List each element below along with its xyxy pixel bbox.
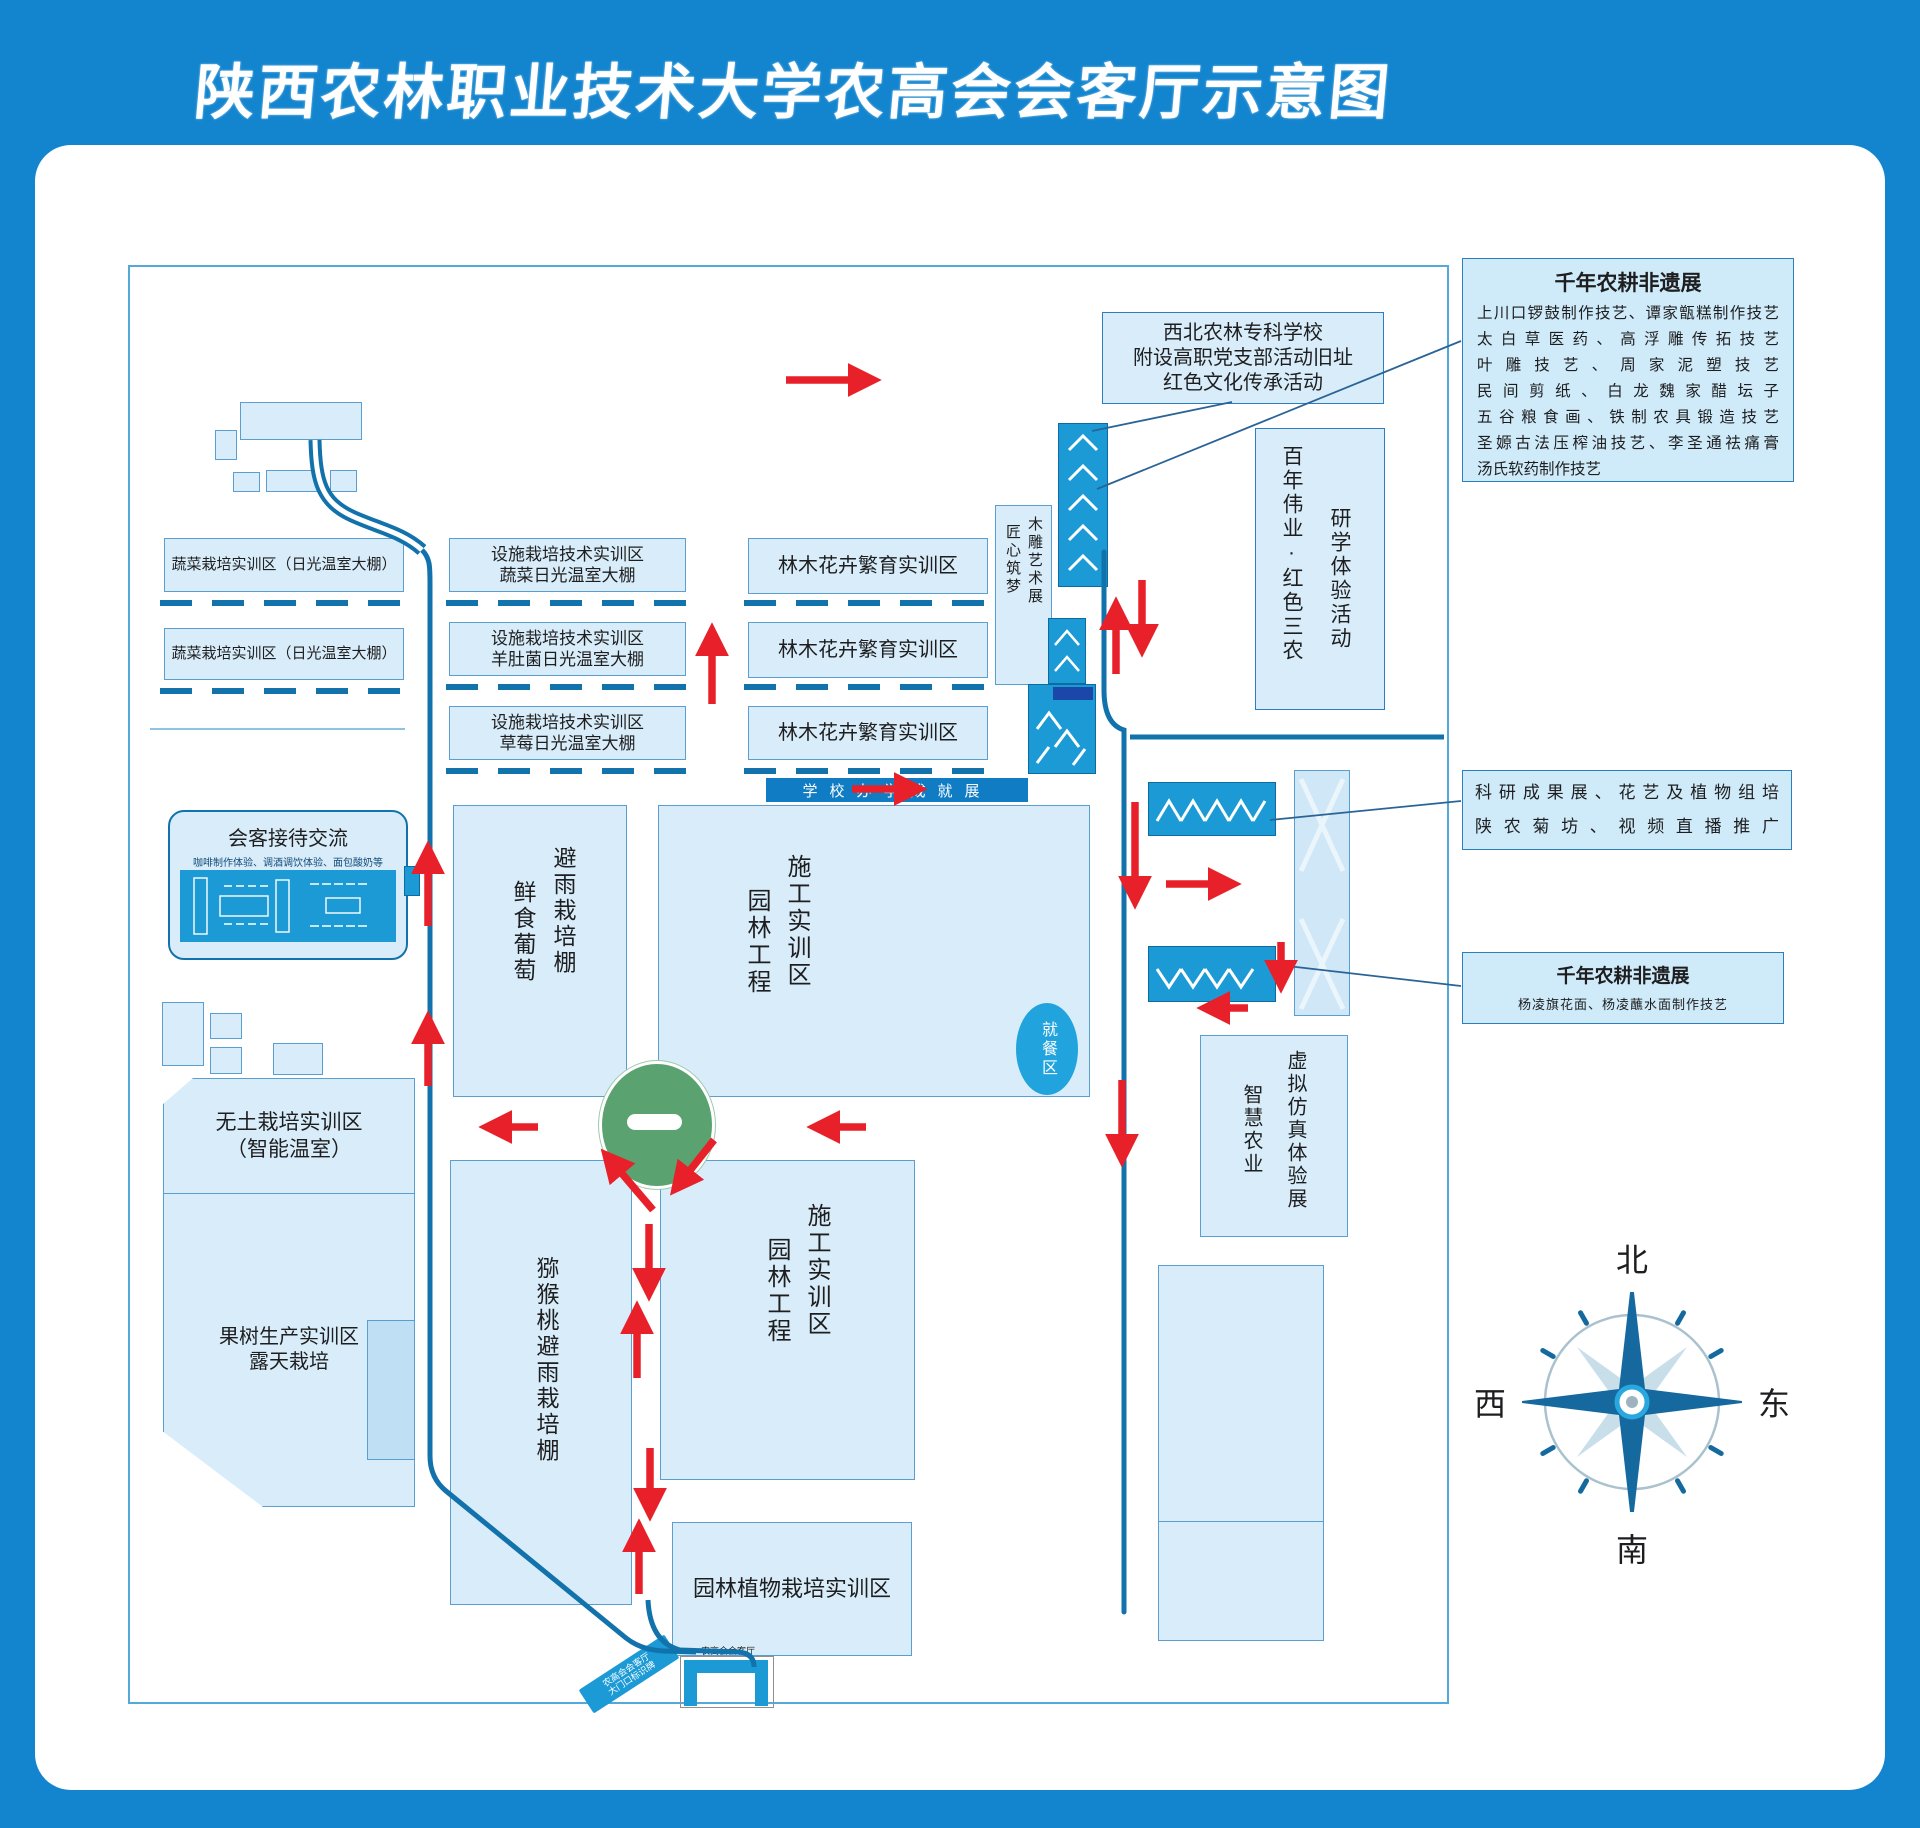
zone-label: 避雨栽培棚	[546, 846, 580, 976]
zone-label: 林木花卉繁育实训区	[778, 638, 958, 663]
zone-vegetable-1: 蔬菜栽培实训区（日光温室大棚）	[164, 538, 404, 592]
zone-century-red-agriculture: 百年伟业·红色三农 研学体验活动	[1255, 428, 1385, 710]
greenhouse-dash	[446, 768, 688, 774]
zone-vegetable-2: 蔬菜栽培实训区（日光温室大棚）	[164, 628, 404, 680]
compass-west-label: 西	[1474, 1379, 1506, 1425]
zone-forest-flower-2: 林木花卉繁育实训区	[748, 622, 988, 678]
zone-label: 智慧农业	[1237, 1084, 1266, 1176]
zone-label: 设施栽培技术实训区	[491, 628, 644, 649]
zone-label: 蔬菜日光温室大棚	[500, 565, 636, 586]
zone-unlabeled-south-east-2	[1158, 1521, 1324, 1641]
zone-label: 虚拟仿真体验展	[1281, 1050, 1310, 1211]
zone-label: 无土栽培实训区	[216, 1110, 363, 1136]
campus-map-poster: 陕西农林职业技术大学农高会会客厅示意图 蔬菜栽培实训区（日光温室大棚） 蔬菜栽培…	[0, 0, 1920, 1828]
zone-label: 西北农林专科学校	[1163, 321, 1323, 346]
greenhouse-dash	[160, 688, 404, 694]
greenhouse-dash	[744, 768, 990, 774]
zone-label: 园林工程	[759, 1237, 794, 1345]
exhibit-stand	[1028, 684, 1096, 774]
road-edge-line	[150, 728, 405, 730]
legend-lines: 上川口锣鼓制作技艺、谭家甑糕制作技艺 太白草医药、高浮雕传拓技艺 叶雕技艺、周家…	[1477, 301, 1779, 483]
zone-label: 设施栽培技术实训区	[491, 712, 644, 733]
building-small	[210, 1047, 242, 1074]
building-small	[210, 1013, 242, 1039]
zone-label: 红色文化传承活动	[1163, 371, 1323, 396]
legend-line: 汤氏软药制作技艺	[1477, 457, 1779, 483]
zone-label: 园林植物栽培实训区	[693, 1575, 891, 1603]
zone-label: 林木花卉繁育实训区	[778, 554, 958, 579]
furniture-layout	[180, 870, 396, 942]
greenhouse-dash	[744, 600, 990, 606]
building-small	[240, 402, 362, 440]
compass-south-label: 南	[1616, 1525, 1648, 1571]
entrance-gate-beam	[684, 1660, 768, 1673]
zone-label: 研学体验活动	[1324, 507, 1354, 651]
reception-area: 会客接待交流 咖啡制作体验、调酒调饮体验、面包酸奶等	[168, 810, 408, 960]
reception-side-tab	[404, 866, 420, 896]
zone-label: 露天栽培	[249, 1350, 329, 1375]
no-entry-bar	[627, 1114, 682, 1130]
zone-label: 果树生产实训区	[219, 1325, 359, 1350]
zone-soilless-culture: 无土栽培实训区 （智能温室）	[163, 1078, 415, 1195]
tent-decoration	[1149, 783, 1275, 835]
corridor-strip	[1294, 770, 1350, 1016]
zone-label: 林木花卉繁育实训区	[778, 721, 958, 746]
exhibit-stand	[1048, 618, 1086, 684]
page-title: 陕西农林职业技术大学农高会会客厅示意图	[191, 44, 1459, 140]
zone-garden-plants: 园林植物栽培实训区	[672, 1522, 912, 1656]
building-small	[162, 1002, 204, 1066]
entrance-gate-label: 农高会会客厅	[688, 1644, 768, 1657]
zone-label: 施工实训区	[799, 1203, 834, 1338]
greenhouse-dash	[446, 684, 688, 690]
legend-line: 叶雕技艺、周家泥塑技艺	[1477, 353, 1779, 379]
legend-research: 科研成果展、花艺及植物组培 陕农菊坊、视频直播推广	[1462, 770, 1792, 850]
tent-decoration	[1049, 619, 1085, 683]
exhibit-stand	[1058, 423, 1108, 587]
legend-line: 科研成果展、花艺及植物组培	[1475, 776, 1779, 810]
legend-line: 上川口锣鼓制作技艺、谭家甑糕制作技艺	[1477, 301, 1779, 327]
legend-line: 圣嫄古法压榨油技艺、李圣通祛痛膏	[1477, 431, 1779, 457]
zone-facility-vegetable: 设施栽培技术实训区 蔬菜日光温室大棚	[449, 538, 686, 592]
legend-line: 太白草医药、高浮雕传拓技艺	[1477, 327, 1779, 353]
reception-subtitle: 咖啡制作体验、调酒调饮体验、面包酸奶等	[170, 854, 406, 869]
greenhouse-dash	[744, 684, 990, 690]
zone-label: 施工实训区	[779, 854, 814, 989]
fruit-inner-plot	[367, 1320, 415, 1460]
entrance-gate-leg	[684, 1673, 697, 1706]
tent-decoration	[1149, 947, 1275, 1001]
zone-label: 设施栽培技术实训区	[491, 544, 644, 565]
legend-title: 千年农耕非遗展	[1477, 267, 1779, 297]
zone-facility-morel: 设施栽培技术实训区 羊肚菌日光温室大棚	[449, 622, 686, 676]
zone-wood-carving: 木雕艺术展 匠心筑梦	[995, 505, 1052, 685]
building-small	[233, 472, 260, 492]
zone-landscape-construction-south: 施工实训区 园林工程	[660, 1160, 915, 1480]
zone-label: 百年伟业·红色三农	[1276, 445, 1306, 663]
reception-floorplan	[180, 870, 396, 942]
reception-title: 会客接待交流	[170, 822, 406, 851]
zone-vr-smart-agriculture: 虚拟仿真体验展 智慧农业	[1200, 1035, 1348, 1237]
compass-north-label: 北	[1616, 1235, 1648, 1281]
zone-label: 木雕艺术展	[1024, 516, 1045, 606]
compass-east-label: 东	[1758, 1379, 1790, 1425]
zone-label: 鲜食葡萄	[506, 880, 540, 984]
legend-title: 千年农耕非遗展	[1473, 961, 1773, 988]
building-small	[273, 1043, 323, 1075]
legend-subtitle: 杨凌旗花面、杨凌蘸水面制作技艺	[1473, 994, 1773, 1013]
zone-label: （智能温室）	[226, 1137, 352, 1163]
tent-decoration	[1059, 424, 1107, 586]
building-small	[215, 430, 237, 460]
zone-label: 蔬菜栽培实训区（日光温室大棚）	[171, 645, 396, 664]
zone-facility-strawberry: 设施栽培技术实训区 草莓日光温室大棚	[449, 706, 686, 760]
zone-label: 蔬菜栽培实训区（日光温室大棚）	[171, 556, 396, 575]
achievement-exhibition-band: 学校办学成就展	[766, 778, 1028, 802]
corridor-cross-marks	[1295, 771, 1349, 1015]
building-small	[266, 470, 318, 492]
legend-line: 民间剪纸、白龙魏家醋坛子	[1477, 379, 1779, 405]
zone-unlabeled-south-east-1	[1158, 1265, 1324, 1523]
building-small	[330, 470, 357, 492]
zone-label: 草莓日光温室大棚	[500, 733, 636, 754]
stand-sign	[1053, 687, 1093, 700]
zone-forest-flower-3: 林木花卉繁育实训区	[748, 706, 988, 760]
legend-line: 陕农菊坊、视频直播推广	[1475, 810, 1779, 844]
zone-forest-flower-1: 林木花卉繁育实训区	[748, 538, 988, 594]
zone-label: 园林工程	[739, 888, 774, 996]
legend-heritage-main: 千年农耕非遗展 上川口锣鼓制作技艺、谭家甑糕制作技艺 太白草医药、高浮雕传拓技艺…	[1462, 258, 1794, 482]
legend-line: 五谷粮食画、铁制农具锻造技艺	[1477, 405, 1779, 431]
zone-label: 猕猴桃避雨栽培棚	[529, 1256, 563, 1464]
exhibit-stand	[1148, 782, 1276, 836]
greenhouse-dash	[160, 600, 404, 606]
zone-label: 匠心筑梦	[1002, 524, 1023, 596]
band-label: 学校办学成就展	[802, 780, 991, 801]
dining-area: 就餐区	[1016, 1003, 1078, 1095]
entrance-gate-leg	[755, 1673, 768, 1706]
zone-label: 就餐区	[1035, 1021, 1059, 1078]
greenhouse-dash	[446, 600, 688, 606]
zone-grape-shelter: 避雨栽培棚 鲜食葡萄	[453, 805, 627, 1097]
exhibit-stand	[1148, 946, 1276, 1002]
zone-kiwi-shelter: 猕猴桃避雨栽培棚	[450, 1160, 632, 1605]
zone-label: 附设高职党支部活动旧址	[1133, 346, 1353, 371]
zone-school-heritage-site: 西北农林专科学校 附设高职党支部活动旧址 红色文化传承活动	[1102, 312, 1384, 404]
zone-label: 羊肚菌日光温室大棚	[491, 649, 644, 670]
legend-heritage-small: 千年农耕非遗展 杨凌旗花面、杨凌蘸水面制作技艺	[1462, 952, 1784, 1024]
